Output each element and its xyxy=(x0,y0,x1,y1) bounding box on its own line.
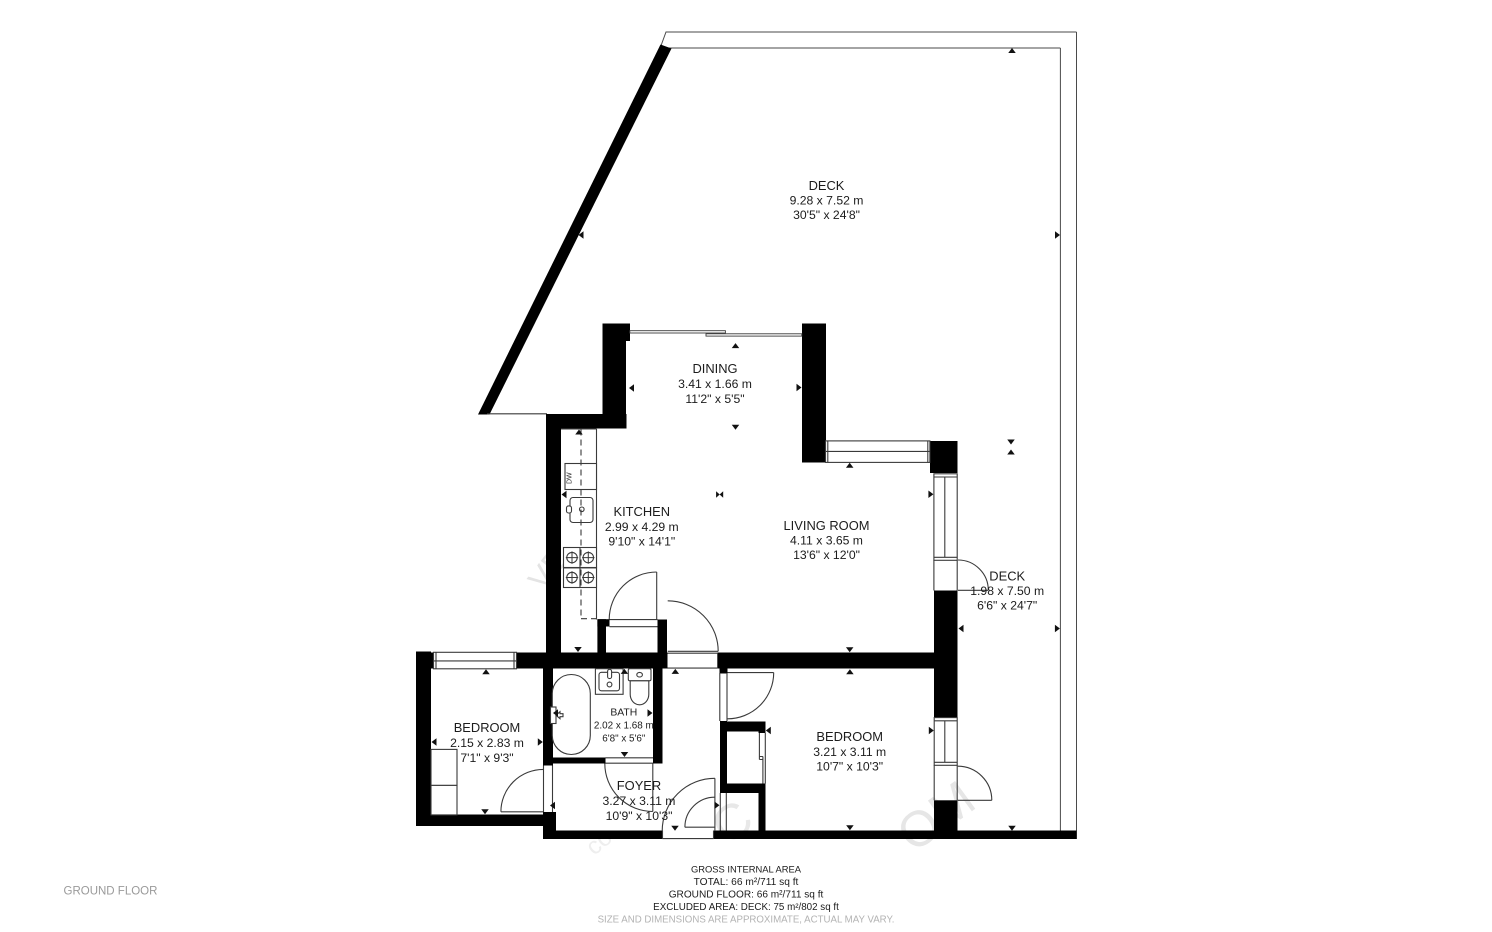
svg-text:10'7" x 10'3": 10'7" x 10'3" xyxy=(816,760,883,774)
svg-text:6'8" x 5'6": 6'8" x 5'6" xyxy=(602,733,646,744)
svg-text:GROUND FLOOR: GROUND FLOOR xyxy=(64,886,158,898)
svg-text:3.41 x 1.66 m: 3.41 x 1.66 m xyxy=(678,377,752,391)
svg-text:2.02 x 1.68 m: 2.02 x 1.68 m xyxy=(594,720,654,731)
svg-text:GROUND FLOOR: 66 m²/711 sq ft: GROUND FLOOR: 66 m²/711 sq ft xyxy=(669,890,824,901)
svg-text:C: C xyxy=(701,789,763,856)
svg-text:SIZE AND DIMENSIONS ARE APPROX: SIZE AND DIMENSIONS ARE APPROXIMATE, ACT… xyxy=(598,915,895,926)
svg-text:4.11 x 3.65 m: 4.11 x 3.65 m xyxy=(790,534,863,548)
svg-text:BEDROOM: BEDROOM xyxy=(816,729,883,744)
svg-text:2.15 x 2.83 m: 2.15 x 2.83 m xyxy=(450,736,524,750)
svg-text:FOYER: FOYER xyxy=(617,778,661,793)
svg-text:30'5" x 24'8": 30'5" x 24'8" xyxy=(793,208,860,222)
svg-text:co: co xyxy=(581,824,618,861)
svg-text:DW: DW xyxy=(567,472,574,484)
svg-text:GROSS INTERNAL AREA: GROSS INTERNAL AREA xyxy=(691,864,802,875)
svg-text:7'1" x 9'3": 7'1" x 9'3" xyxy=(460,751,513,765)
svg-text:11'2" x 5'5": 11'2" x 5'5" xyxy=(685,392,744,406)
svg-text:3.21 x 3.11 m: 3.21 x 3.11 m xyxy=(813,745,886,759)
svg-text:BEDROOM: BEDROOM xyxy=(454,720,521,735)
svg-text:BATH: BATH xyxy=(610,708,637,719)
svg-text:1.98 x 7.50 m: 1.98 x 7.50 m xyxy=(970,584,1044,598)
svg-text:9.28 x 7.52 m: 9.28 x 7.52 m xyxy=(790,194,864,208)
svg-text:KITCHEN: KITCHEN xyxy=(614,504,671,519)
svg-text:EXCLUDED AREA: DECK: 75 m²/802: EXCLUDED AREA: DECK: 75 m²/802 sq ft xyxy=(653,902,839,913)
svg-text:2.99 x 4.29 m: 2.99 x 4.29 m xyxy=(605,520,679,534)
svg-text:13'6" x 12'0": 13'6" x 12'0" xyxy=(793,548,860,562)
svg-text:9'10" x 14'1": 9'10" x 14'1" xyxy=(608,535,675,549)
svg-text:DECK: DECK xyxy=(809,178,845,193)
svg-text:DINING: DINING xyxy=(692,361,737,376)
svg-text:DECK: DECK xyxy=(989,569,1025,584)
svg-text:LIVING ROOM: LIVING ROOM xyxy=(784,518,870,533)
svg-text:6'6" x 24'7": 6'6" x 24'7" xyxy=(977,599,1037,613)
svg-text:3.27 x 3.11 m: 3.27 x 3.11 m xyxy=(603,794,676,808)
svg-text:TOTAL: 66 m²/711 sq ft: TOTAL: 66 m²/711 sq ft xyxy=(694,877,799,888)
svg-text:10'9" x 10'3": 10'9" x 10'3" xyxy=(606,809,673,823)
